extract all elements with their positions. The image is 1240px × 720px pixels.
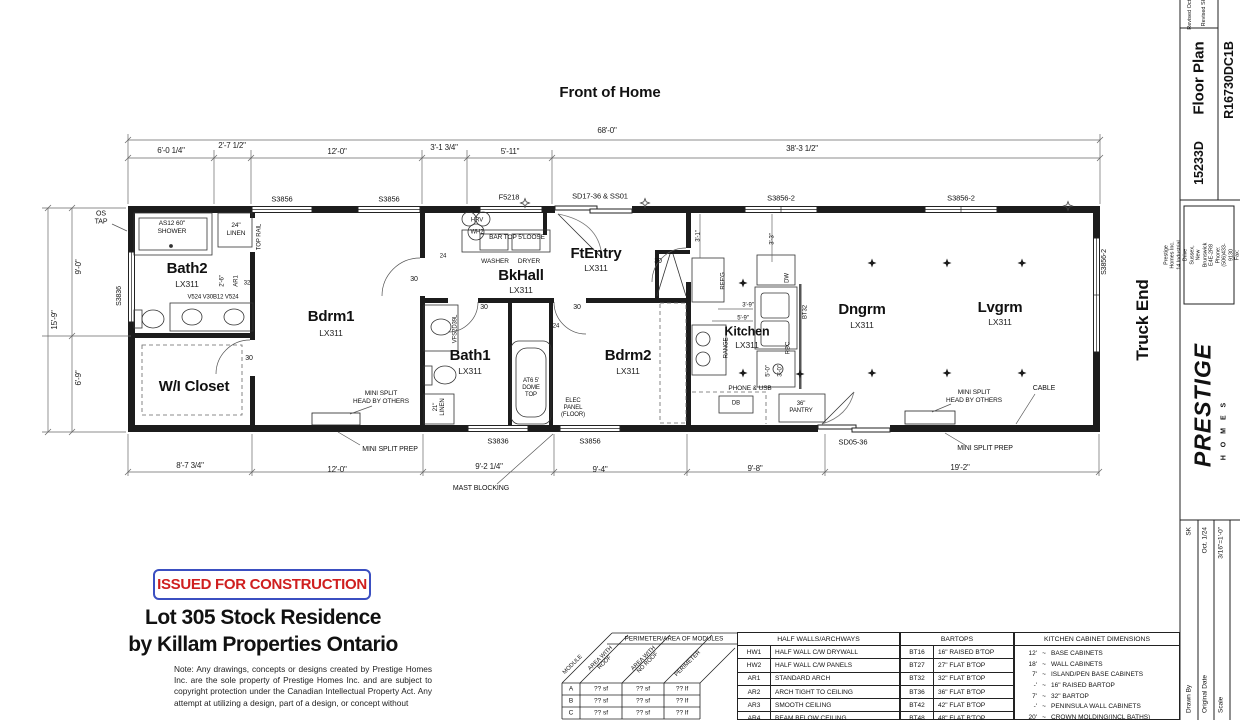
room-name-ftentry: FtEntry [570, 245, 621, 263]
dim-kitchen: 3'-9" [742, 302, 753, 309]
dim-top-5: 5'-11" [501, 147, 520, 157]
mini-split-head-label: MINI SPLIT HEAD BY OTHERS [946, 389, 1002, 405]
original-date-label: Original Date [1202, 675, 1209, 713]
kitchen-cabinets-title: KITCHEN CABINET DIMENSIONS [1015, 633, 1179, 646]
modules-table-title: PERIMETER/AREA OF MODULES [625, 635, 724, 642]
dim-top-6: 38'-3 1/2" [786, 144, 818, 154]
dishwasher-label: DW [784, 273, 791, 283]
front-of-home-title: Front of Home [559, 84, 660, 102]
door-size-label: 30 [480, 304, 488, 312]
window-label: S3836 [487, 437, 508, 446]
cab-qty: 7' [1015, 671, 1037, 678]
window-label: S3836 [116, 286, 124, 306]
modules-cell: B [569, 698, 573, 705]
dim-top-2: 2'-7 1/2" [218, 141, 245, 151]
door-size-label: 30 [410, 276, 418, 284]
drawn-by-label: Drawn By [1186, 685, 1193, 713]
dim-kitchen: 3'-1" [695, 230, 702, 241]
issued-for-construction-stamp: ISSUED FOR CONSTRUCTION [153, 569, 371, 600]
tilde: ~ [1037, 671, 1051, 678]
dim-left-bottom: 6'-9" [74, 371, 84, 386]
dim-bath2-arch: 2'-6" [219, 275, 226, 286]
mini-split-head-label: MINI SPLIT HEAD BY OTHERS [353, 390, 409, 406]
top-rail-label: TOP RAIL [256, 224, 263, 250]
row-desc: 16" RAISED B'TOP [934, 649, 994, 656]
door-label: SD17-36 & SS01 [572, 192, 628, 201]
half-walls-title: HALF WALLS/ARCHWAYS [738, 633, 899, 646]
tub-label: AT6 5' DOME TOP [522, 378, 540, 400]
room-name-bkhall: BkHall [498, 267, 544, 285]
cab-desc: PENINSULA WALL CABINETS [1051, 703, 1141, 710]
window-label: F5218 [499, 193, 520, 202]
model-number: R16730DC1B [1222, 41, 1236, 119]
dim-bottom-1: 8'-7 3/4" [176, 461, 203, 471]
door-size-label: 24 [440, 253, 446, 260]
room-model: LX311 [509, 285, 532, 295]
row-desc: HALF WALL C/W PANELS [771, 662, 852, 669]
linen-label: 24" LINEN [227, 222, 246, 238]
row-code: AR4 [738, 712, 771, 720]
company-address: Prestige Homes Inc. 14 Industrial Drive … [1164, 240, 1240, 271]
door-size-label: 30 [245, 355, 253, 363]
revision-note: Revised Oct. [1187, 0, 1193, 30]
room-name-bdrm1: Bdrm1 [308, 308, 355, 326]
row-code: BT42 [901, 699, 934, 711]
window-label: S3856 [579, 437, 600, 446]
modules-cell: A [569, 686, 573, 693]
modules-cell: ?? lf [676, 710, 688, 717]
vanity-label: VFS2D39L [452, 315, 459, 344]
tilde: ~ [1037, 661, 1051, 668]
row-code: HW1 [738, 646, 771, 658]
modules-cell: ?? sf [636, 698, 650, 705]
dim-left-total: 15'-9" [50, 310, 60, 329]
room-model: LX311 [584, 263, 607, 273]
shower-label: AS12 60" SHOWER [158, 220, 187, 236]
row-desc: 27" FLAT B'TOP [934, 662, 985, 669]
dim-top-total: 68'-0" [597, 126, 616, 136]
dim-bottom-4: 9'-4" [593, 465, 608, 475]
modules-cell: ?? sf [594, 686, 608, 693]
drawn-by-value: SK [1186, 527, 1193, 536]
room-model: LX311 [319, 328, 342, 338]
row-desc: ARCH TIGHT TO CEILING [771, 689, 853, 696]
half-walls-table: HALF WALLS/ARCHWAYS HW1HALF WALL C/W DRY… [737, 632, 900, 720]
cab-desc: 16" RAISED BARTOP [1051, 682, 1115, 689]
dim-bottom-3: 9'-2 1/4" [475, 462, 502, 472]
cab-qty: 12' [1015, 650, 1037, 657]
dryer-label: DRYER [518, 258, 540, 266]
modules-cell: ?? sf [636, 686, 650, 693]
cab-qty: 7' [1015, 693, 1037, 700]
row-desc: 36" FLAT B'TOP [934, 689, 985, 696]
row-desc: 48" FLAT B'TOP [934, 715, 985, 720]
room-model: LX311 [988, 317, 1011, 327]
window-label: S3856-2 [767, 194, 795, 203]
row-code: BT32 [901, 673, 934, 685]
window-label: S3856-2 [1101, 249, 1109, 275]
prestige-logo: PRESTIGE [1190, 343, 1217, 467]
row-code: AR1 [738, 673, 771, 685]
linen-label: 21" LINEN [433, 398, 447, 415]
door-size-label: 30 [573, 304, 581, 312]
room-model: LX311 [175, 279, 198, 289]
dim-kitchen: 3'-3" [769, 233, 776, 244]
serial-number: 15233D [1192, 141, 1206, 185]
wh2-label: WH2 [470, 229, 483, 236]
row-code: BT48 [901, 712, 934, 720]
window-label: S3856-2 [947, 194, 975, 203]
modules-cell: ?? sf [636, 710, 650, 717]
room-model: LX311 [735, 340, 758, 350]
mini-split-prep-label: MINI SPLIT PREP [957, 445, 1013, 453]
pantry-label: 36" PANTRY [789, 401, 812, 415]
modules-cell: ?? lf [676, 686, 688, 693]
room-name-kitchen: Kitchen [724, 325, 769, 340]
rbc-label: RBC [785, 342, 792, 354]
mast-blocking-label: MAST BLOCKING [453, 485, 509, 493]
row-desc: 42" FLAT B'TOP [934, 702, 985, 709]
cab-desc: 32" BARTOP [1051, 693, 1089, 700]
row-desc: SMOOTH CEILING [771, 702, 831, 709]
prestige-logo-sub: H O M E S [1221, 400, 1228, 460]
tilde: ~ [1037, 650, 1051, 657]
floor-plan-sheet: Front of Home 68'-0" 6'-0 1/4" 2'-7 1/2"… [0, 0, 1240, 720]
cab-qty: 18' [1015, 661, 1037, 668]
cab-desc: ISLAND/PEN BASE CABINETS [1051, 671, 1143, 678]
dim-bottom-2: 12'-0" [327, 465, 346, 475]
row-desc: BEAM BELOW CEILING [771, 715, 847, 720]
bartops-title: BARTOPS [901, 633, 1013, 646]
room-name-bath1: Bath1 [450, 347, 491, 365]
window-label: S3856 [378, 195, 399, 204]
dim-left-top: 9'-0" [74, 260, 84, 275]
os-tap-label: OS TAP [95, 211, 108, 228]
room-name-bath2: Bath2 [167, 260, 208, 278]
row-code: AR3 [738, 699, 771, 711]
cab-desc: CROWN MOLDING(INCL BATHS) [1051, 714, 1150, 720]
tilde: ~ [1037, 703, 1051, 710]
room-name-bdrm2: Bdrm2 [605, 347, 652, 365]
dim-top-4: 3'-1 3/4" [430, 143, 457, 153]
fridge-label: REF'G [720, 272, 727, 289]
row-code: BT27 [901, 659, 934, 671]
original-date-field: Original Date Oct. 1/24 [1202, 527, 1209, 713]
room-name-lvgrm: Lvgrm [978, 299, 1023, 317]
row-desc: STANDARD ARCH [771, 675, 830, 682]
row-code: BT36 [901, 686, 934, 698]
drawn-by-field: Drawn By SK [1186, 527, 1193, 713]
cab-desc: WALL CABINETS [1051, 661, 1103, 668]
db-label: DB [732, 400, 740, 407]
modules-cell: ?? sf [594, 710, 608, 717]
tilde: ~ [1037, 693, 1051, 700]
stamp-text: ISSUED FOR CONSTRUCTION [157, 576, 367, 593]
dim-kitchen: 5'-0" [765, 365, 772, 376]
scale-field: Scale 3/16"=1'-0" [1218, 527, 1225, 713]
bartops-table: BARTOPS BT1616" RAISED B'TOP BT2727" FLA… [900, 632, 1014, 720]
dim-top-3: 12'-0" [327, 147, 346, 157]
row-desc: HALF WALL C/W DRYWALL [771, 649, 858, 656]
room-name-dngrm: Dngrm [838, 301, 885, 319]
row-code: BT16 [901, 646, 934, 658]
mini-split-prep-label: MINI SPLIT PREP [362, 446, 418, 454]
truck-end-label: Truck End [1133, 279, 1153, 360]
row-code: AR2 [738, 686, 771, 698]
room-model: LX311 [616, 366, 639, 376]
hrv-label: HRV [471, 217, 483, 224]
scale-label: Scale [1218, 697, 1225, 713]
range-label: RANGE [723, 338, 730, 359]
door-size-label: 24 [553, 323, 559, 330]
door-size-label: 30 [654, 258, 662, 266]
dim-kitchen: 5'-9" [737, 315, 748, 322]
original-date-value: Oct. 1/24 [1202, 527, 1209, 553]
dim-bottom-6: 19'-2" [950, 463, 969, 473]
dim-kitchen: 3'-0" [777, 365, 784, 376]
elec-panel-label: ELEC PANEL (FLOOR) [561, 398, 585, 420]
vanity-codes-label: V524 V30B12 V524 [187, 294, 238, 301]
cab-qty: -' [1015, 703, 1037, 710]
room-model: LX311 [458, 366, 481, 376]
room-model: LX311 [850, 320, 873, 330]
scale-value: 3/16"=1'-0" [1218, 527, 1225, 559]
window-label: S3856 [271, 195, 292, 204]
copyright-note: Note: Any drawings, concepts or designs … [174, 664, 432, 709]
dim-bottom-5: 9'-8" [748, 464, 763, 474]
door-label: SD05-36 [839, 438, 868, 447]
washer-label: WASHER [481, 258, 509, 266]
row-code: HW2 [738, 659, 771, 671]
bar-top-label: BAR TOP 5'LOOSE [489, 234, 545, 242]
phone-usb-label: PHONE & USB [728, 385, 771, 393]
arch-size-label: 32 [244, 280, 250, 287]
cable-label: CABLE [1033, 385, 1055, 393]
cab-qty: -' [1015, 682, 1037, 689]
bartop-label: BT32 [802, 305, 809, 319]
project-title-line1: Lot 305 Stock Residence [145, 606, 381, 630]
modules-cell: C [569, 710, 574, 717]
cab-qty: 20' [1015, 714, 1037, 720]
modules-cell: ?? sf [594, 698, 608, 705]
revision-note: Revised SK [1201, 0, 1207, 26]
tilde: ~ [1037, 682, 1051, 689]
project-title-line2: by Killam Properties Ontario [128, 633, 398, 657]
cab-desc: BASE CABINETS [1051, 650, 1103, 657]
modules-cell: ?? lf [676, 698, 688, 705]
dim-top-1: 6'-0 1/4" [157, 146, 184, 156]
tilde: ~ [1037, 714, 1051, 720]
kitchen-cabinets-table: KITCHEN CABINET DIMENSIONS 12'~BASE CABI… [1014, 632, 1180, 720]
room-name-wic: W/I Closet [159, 378, 230, 396]
arch-label: AR1 [233, 275, 240, 286]
row-desc: 32" FLAT B'TOP [934, 675, 985, 682]
sheet-title: Floor Plan [1191, 41, 1208, 114]
